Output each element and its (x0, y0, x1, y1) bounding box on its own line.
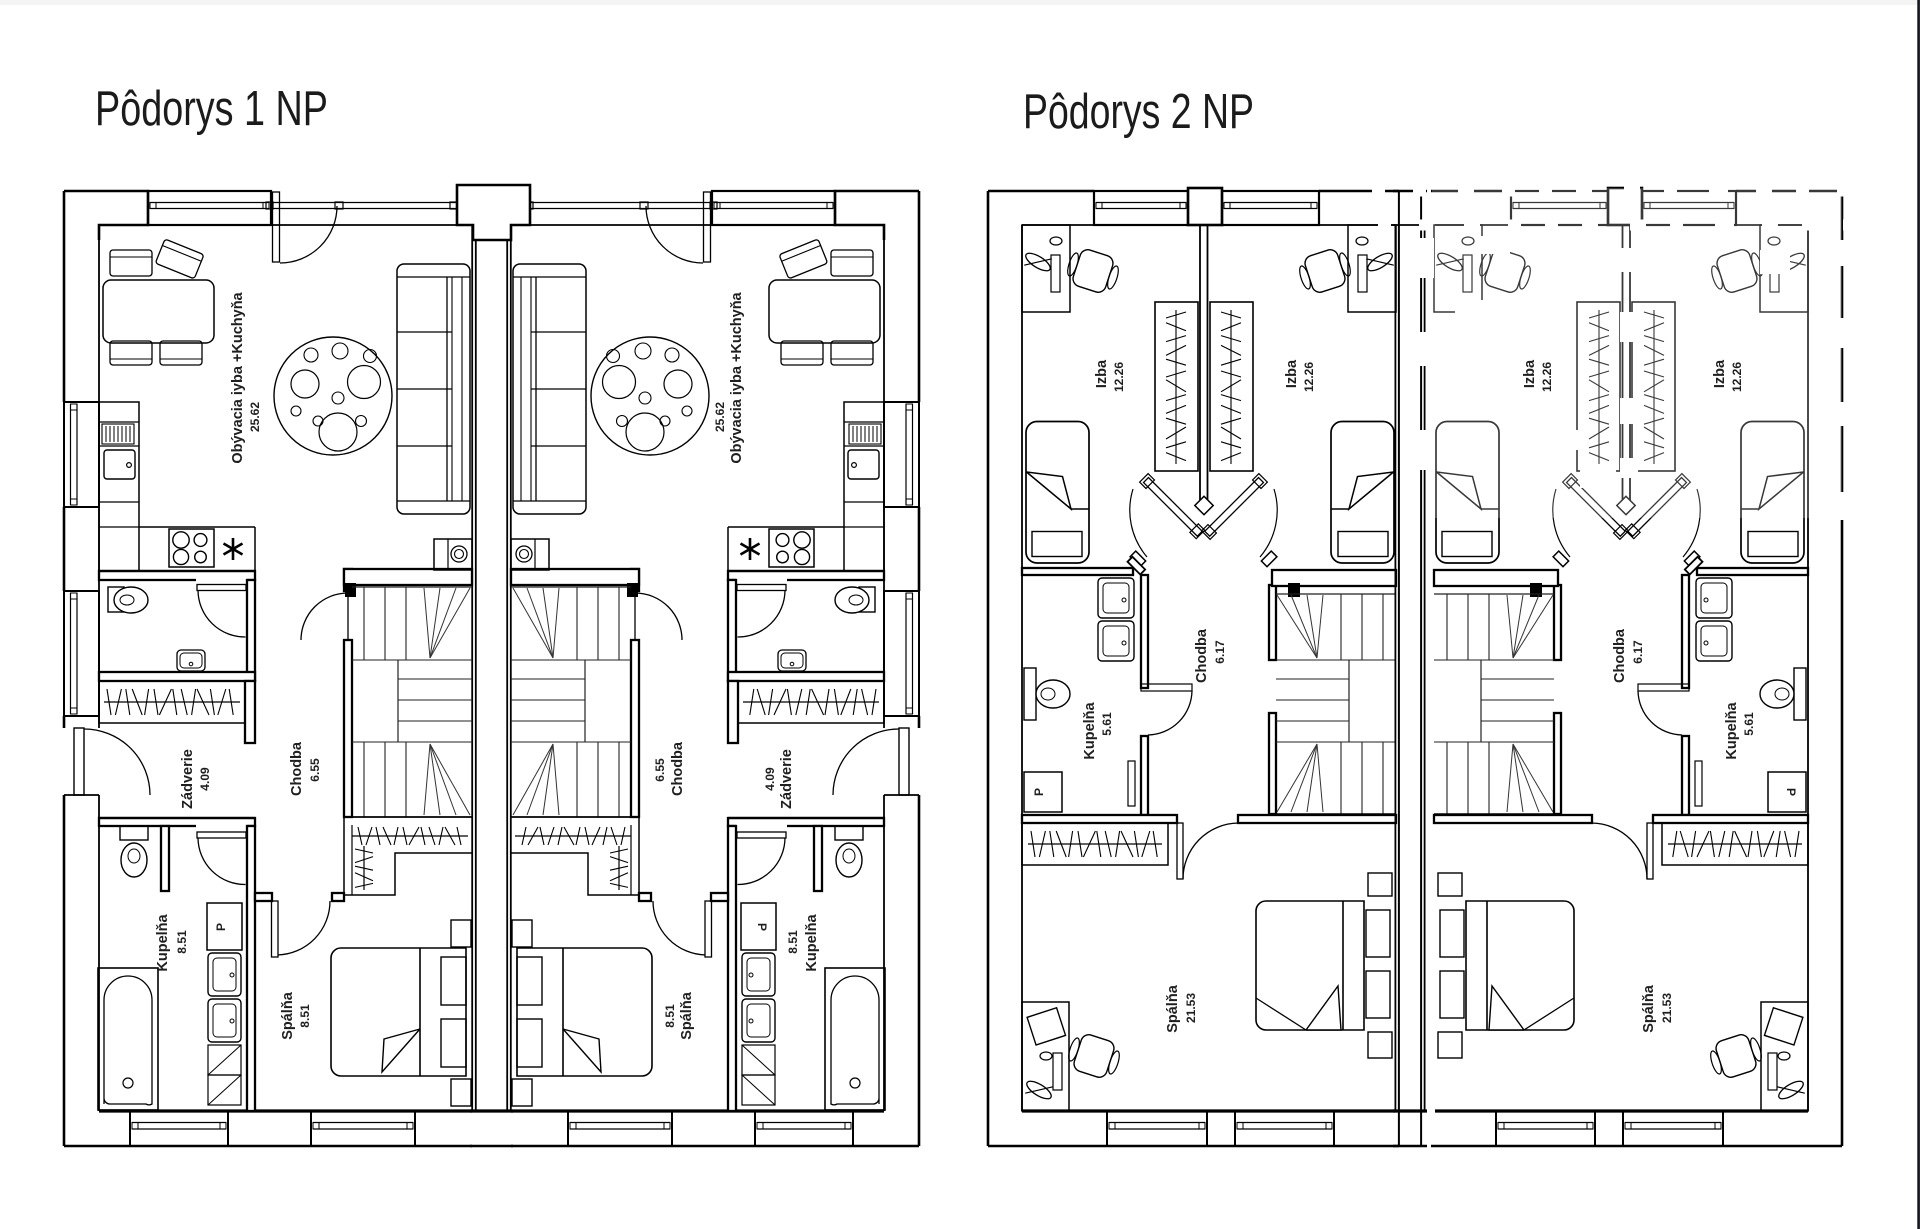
svg-text:Chodba: Chodba (670, 741, 686, 796)
svg-text:8.51: 8.51 (175, 930, 189, 954)
svg-text:Obývacia iyba +Kuchyňa: Obývacia iyba +Kuchyňa (729, 291, 745, 463)
svg-text:Chodba: Chodba (289, 741, 305, 796)
svg-text:5.61: 5.61 (1742, 712, 1756, 736)
svg-text:Chodba: Chodba (1194, 628, 1210, 683)
svg-text:8.51: 8.51 (786, 930, 800, 954)
svg-text:Kupelňa: Kupelňa (1082, 701, 1098, 759)
svg-text:P: P (1784, 788, 1798, 796)
svg-text:Chodba: Chodba (1612, 628, 1628, 683)
svg-text:Obývacia iyba +Kuchyňa: Obývacia iyba +Kuchyňa (230, 291, 246, 463)
svg-text:25.62: 25.62 (713, 402, 727, 432)
svg-text:P: P (214, 923, 228, 931)
svg-text:Kupelňa: Kupelňa (804, 913, 820, 971)
svg-text:12.26: 12.26 (1730, 362, 1744, 392)
svg-text:8.51: 8.51 (298, 1004, 312, 1028)
svg-text:Pôdorys 2 NP: Pôdorys 2 NP (1023, 85, 1254, 139)
svg-text:6.55: 6.55 (653, 758, 667, 782)
svg-text:4.09: 4.09 (198, 767, 212, 791)
svg-text:Izba: Izba (1284, 359, 1300, 388)
svg-text:6.17: 6.17 (1631, 640, 1645, 664)
svg-text:Pôdorys 1 NP: Pôdorys 1 NP (95, 82, 328, 136)
svg-text:Spálňa: Spálňa (679, 991, 695, 1039)
svg-text:21.53: 21.53 (1660, 993, 1674, 1023)
svg-text:Spálňa: Spálňa (1641, 984, 1657, 1032)
svg-text:6.17: 6.17 (1213, 640, 1227, 664)
svg-text:P: P (1032, 788, 1046, 796)
svg-text:Kupelňa: Kupelňa (1724, 701, 1740, 759)
svg-text:21.53: 21.53 (1184, 993, 1198, 1023)
svg-text:Kupelňa: Kupelňa (155, 913, 171, 971)
svg-text:Zádverie: Zádverie (779, 749, 795, 809)
svg-text:25.62: 25.62 (248, 402, 262, 432)
svg-text:P: P (755, 923, 769, 931)
svg-text:6.55: 6.55 (308, 758, 322, 782)
svg-text:Zádverie: Zádverie (180, 749, 196, 809)
svg-text:12.26: 12.26 (1540, 362, 1554, 392)
svg-text:Izba: Izba (1094, 359, 1110, 388)
svg-text:Izba: Izba (1522, 359, 1538, 388)
svg-text:Spálňa: Spálňa (1165, 984, 1181, 1032)
svg-text:5.61: 5.61 (1100, 712, 1114, 736)
svg-text:Izba: Izba (1712, 359, 1728, 388)
svg-text:12.26: 12.26 (1112, 362, 1126, 392)
svg-text:Spálňa: Spálňa (280, 991, 296, 1039)
svg-text:12.26: 12.26 (1302, 362, 1316, 392)
svg-text:8.51: 8.51 (663, 1004, 677, 1028)
svg-text:4.09: 4.09 (763, 767, 777, 791)
